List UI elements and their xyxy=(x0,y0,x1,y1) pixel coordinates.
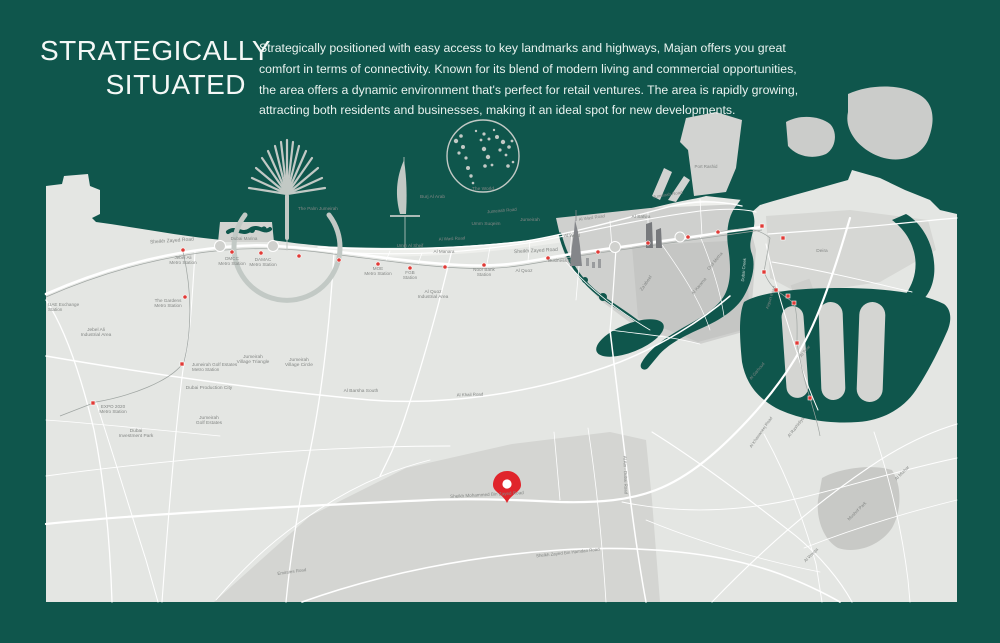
metro-station-dot xyxy=(716,230,720,234)
burj-al-arab-icon xyxy=(390,157,420,248)
map-label: Burj Al Arab xyxy=(420,194,445,200)
marina-basin xyxy=(261,226,266,231)
metro-station-dot xyxy=(183,295,187,299)
metro-station-square xyxy=(808,396,812,400)
map-label: JumeirahGolf Estates xyxy=(196,415,223,426)
map-label: Al Barsha South xyxy=(344,388,379,394)
metro-station-dot xyxy=(686,235,690,239)
brochure-page: Sheikh Zayed RoadJebel AliMetro StationD… xyxy=(0,0,1000,643)
map-label: The World xyxy=(472,186,494,192)
marina-basin xyxy=(249,227,255,233)
metro-station-square xyxy=(781,236,785,240)
page-title-line2: SITUATED xyxy=(40,68,246,102)
map-label: Deira xyxy=(816,248,828,254)
metro-station-square xyxy=(762,270,766,274)
map-label: Al Khail Road xyxy=(457,392,484,398)
metro-station-dot xyxy=(259,251,263,255)
intro-paragraph-line: attracting both residents and businesses… xyxy=(259,100,771,121)
map-label: Al Satwa xyxy=(632,214,651,220)
metro-station-square xyxy=(91,401,95,405)
metro-station-square xyxy=(792,301,796,305)
world-islands xyxy=(454,129,515,185)
lagoon-finger xyxy=(818,302,845,401)
palm-fronds xyxy=(249,140,325,194)
metro-station-dot xyxy=(337,258,341,262)
deira-island xyxy=(847,87,932,160)
intro-paragraph-line: Strategically positioned with easy acces… xyxy=(259,38,771,59)
map-label: Umm Suqeim xyxy=(471,221,500,227)
lagoon-finger xyxy=(856,302,885,403)
map-label: Dubai Marina xyxy=(231,236,258,241)
map-label: EXPO 2020Metro Station xyxy=(99,404,127,414)
map-label: Al Wasl xyxy=(564,233,580,239)
map-label: Al Manara xyxy=(434,249,455,254)
interchange xyxy=(610,242,621,253)
metro-station-dot xyxy=(596,250,600,254)
the-world-icon xyxy=(447,120,519,192)
intro-paragraph-line: comfort in terms of connectivity. Known … xyxy=(259,59,771,80)
metro-station-square xyxy=(180,362,184,366)
map-label: Jumeirah xyxy=(520,217,540,223)
map-label: Al Wasl Road xyxy=(439,235,466,241)
map-label: Dubai Production City xyxy=(186,385,233,391)
map-label: Port Rashid xyxy=(695,164,718,169)
map-label: The Palm Jumeirah xyxy=(298,206,338,211)
intro-paragraph: Strategically positioned with easy acces… xyxy=(259,38,771,121)
map-label: Business Bay xyxy=(548,258,577,263)
sail-shape xyxy=(397,160,407,214)
metro-station-dot xyxy=(230,250,234,254)
intro-paragraph-line: the area offers a dynamic environment th… xyxy=(259,80,771,101)
interchange xyxy=(675,232,685,242)
metro-station-dot xyxy=(181,248,185,252)
interchange xyxy=(215,241,226,252)
map-label: Umm Al Sheif xyxy=(397,243,424,248)
pin-hole xyxy=(502,479,511,488)
metro-station-square xyxy=(786,294,790,298)
metro-station-dot xyxy=(646,241,650,245)
deira-island-small xyxy=(786,117,835,157)
map-label: Jumeirah Road xyxy=(487,207,518,215)
metro-station-dot xyxy=(443,265,447,269)
page-title-line1: STRATEGICALLY xyxy=(40,34,246,68)
port-peninsula xyxy=(680,112,742,196)
metro-station-square xyxy=(795,341,799,345)
map-label: The GardensMetro Station xyxy=(154,298,182,308)
metro-station-dot xyxy=(297,254,301,258)
world-outline xyxy=(447,120,519,192)
page-title: STRATEGICALLY SITUATED xyxy=(40,34,246,102)
interchange xyxy=(268,241,279,252)
map-label: Al Quoz xyxy=(515,268,533,274)
metro-station-square xyxy=(760,224,764,228)
